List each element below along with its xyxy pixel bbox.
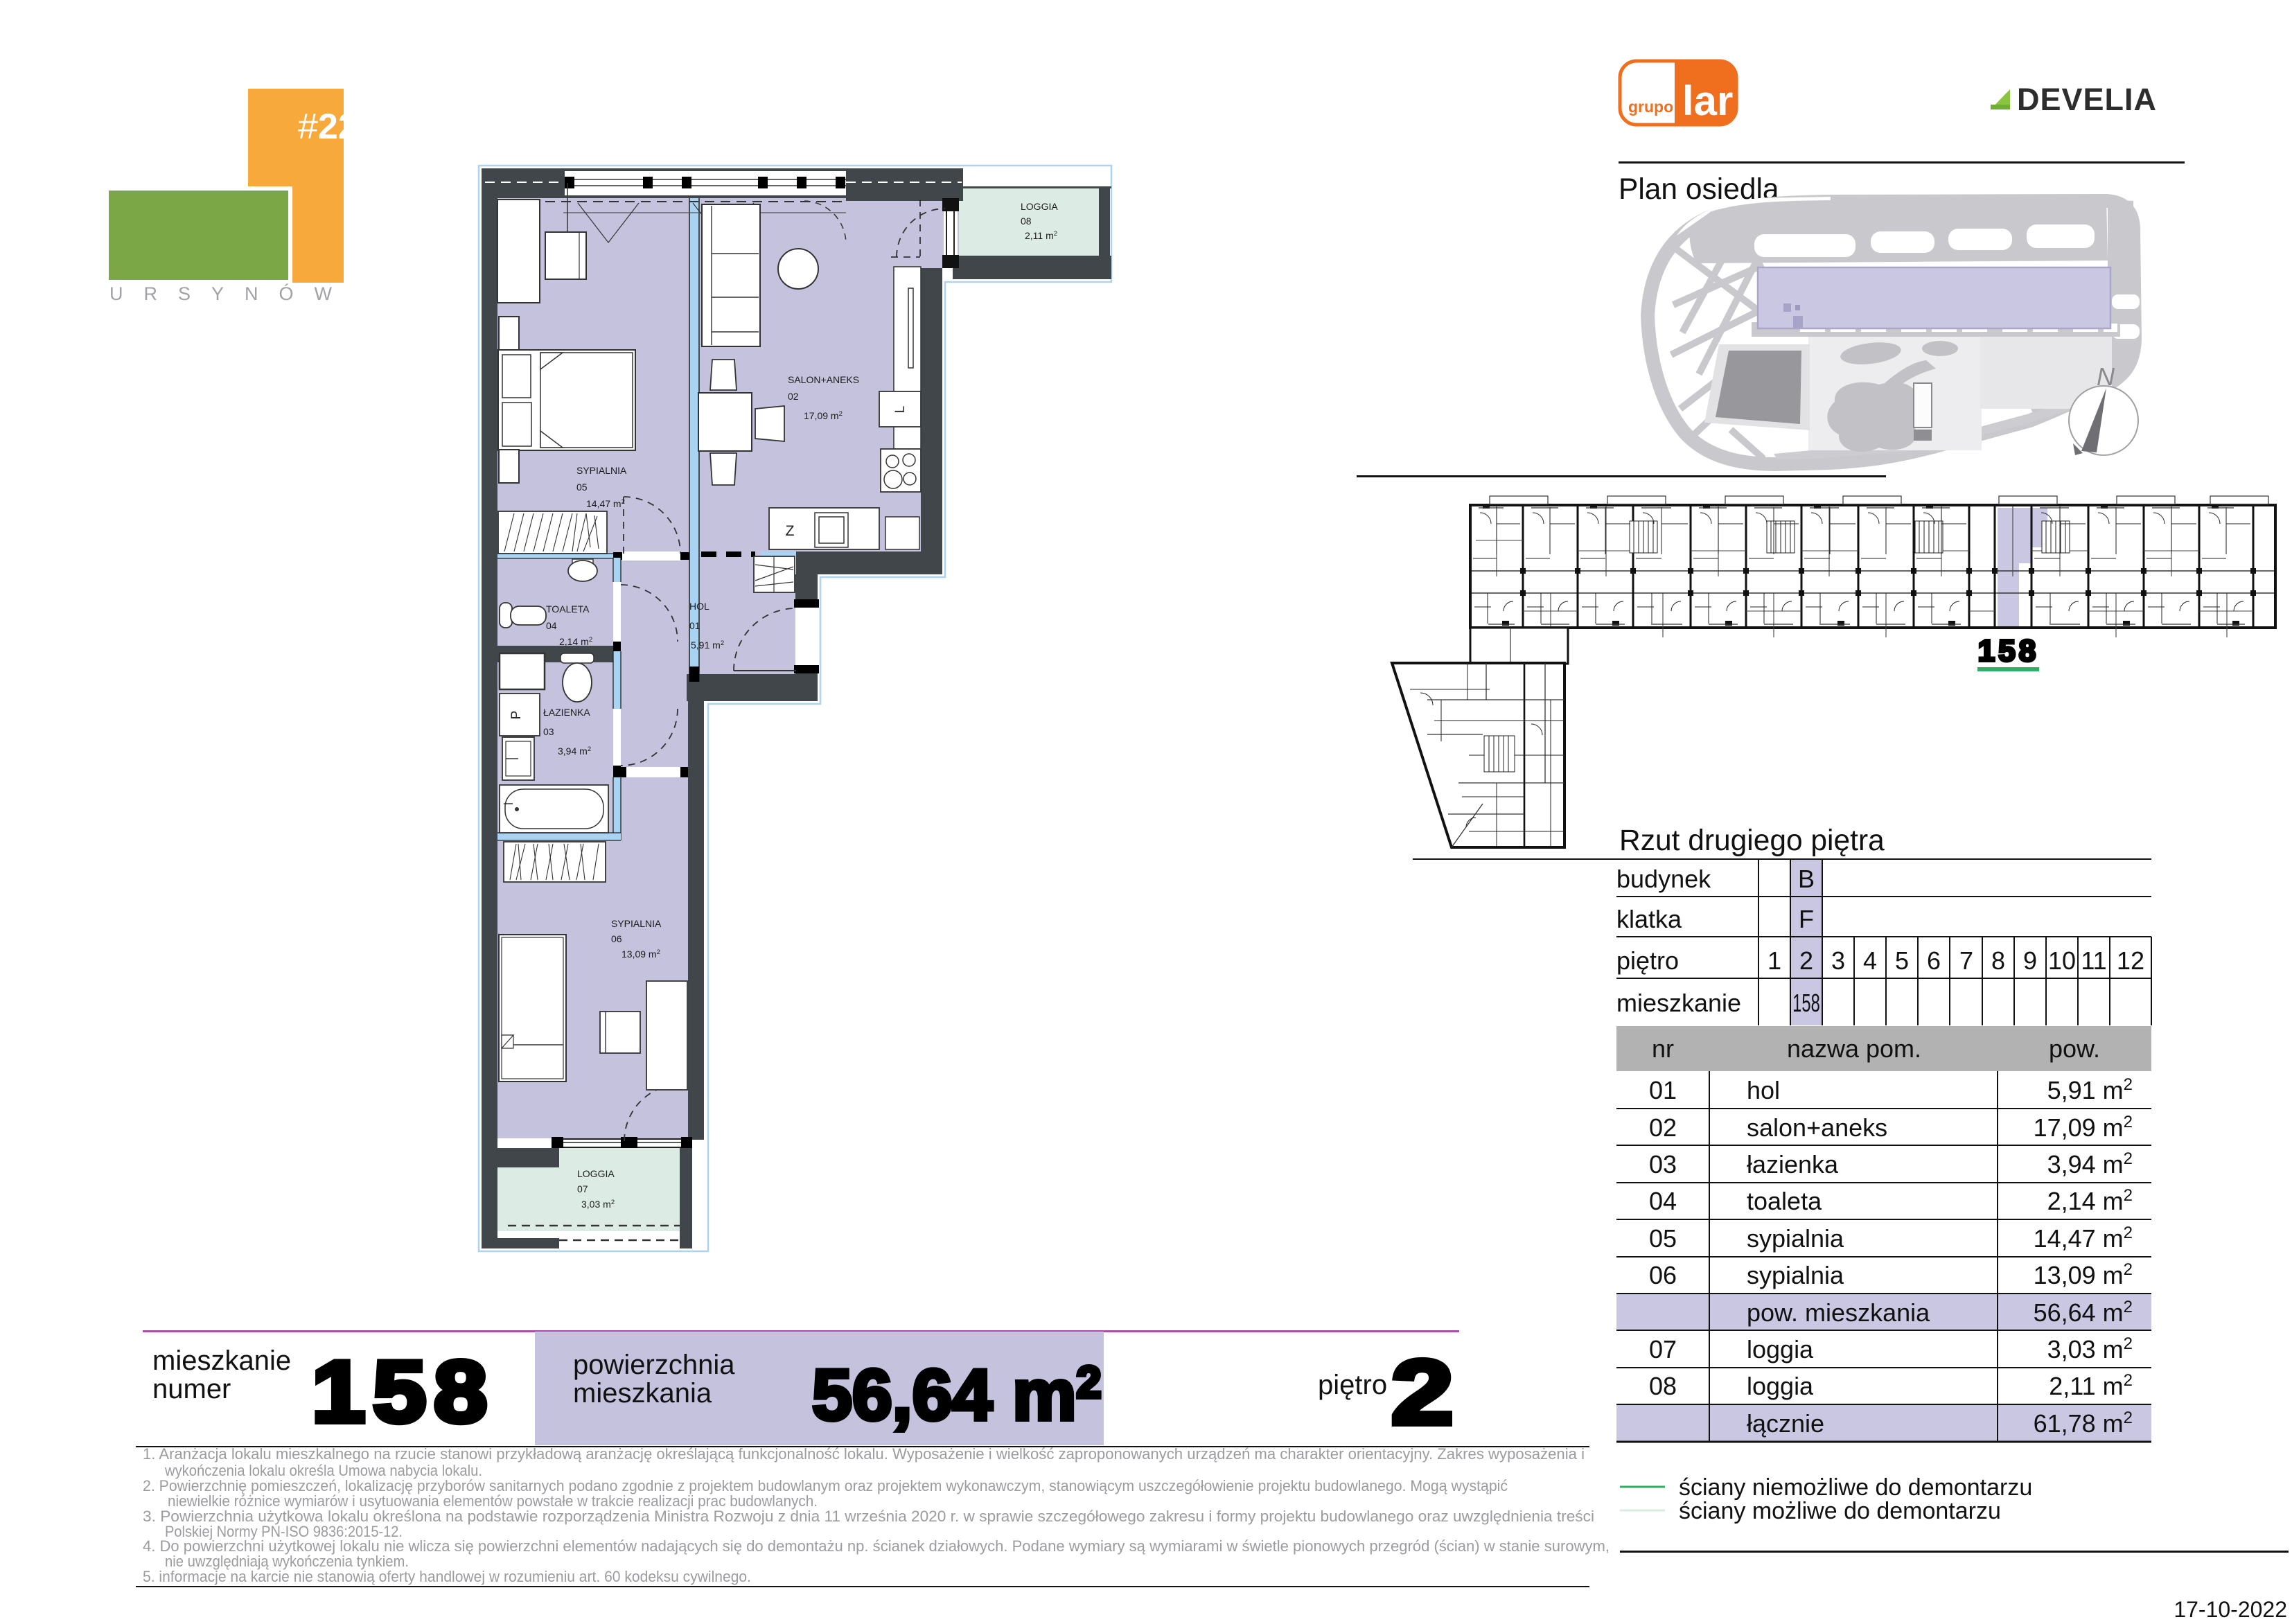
- svg-text:17-10-2022: 17-10-2022: [2174, 1597, 2287, 1621]
- svg-text:01: 01: [689, 620, 700, 631]
- svg-text:5. informacje na karcie nie st: 5. informacje na karcie nie stanowią ofe…: [143, 1568, 751, 1585]
- svg-text:powierzchnia: powierzchnia: [573, 1350, 735, 1380]
- svg-text:2,11 m2: 2,11 m2: [1025, 230, 1057, 241]
- svg-text:hol: hol: [1747, 1076, 1780, 1104]
- svg-text:12: 12: [2117, 946, 2144, 975]
- svg-text:8: 8: [1991, 946, 2005, 975]
- svg-text:04: 04: [546, 620, 557, 631]
- svg-text:2,14 m2: 2,14 m2: [2047, 1186, 2133, 1215]
- svg-text:03: 03: [543, 726, 554, 737]
- svg-text:P: P: [509, 711, 524, 720]
- svg-text:05: 05: [1649, 1224, 1677, 1253]
- svg-text:LOGGIA: LOGGIA: [1021, 201, 1058, 212]
- svg-text:HOL: HOL: [689, 601, 709, 612]
- svg-text:7: 7: [1959, 946, 1973, 975]
- svg-text:ściany możliwe do demontarzu: ściany możliwe do demontarzu: [1679, 1498, 2001, 1524]
- svg-text:Z: Z: [786, 523, 795, 539]
- svg-text:06: 06: [611, 933, 622, 944]
- svg-text:3,94 m2: 3,94 m2: [2047, 1149, 2133, 1179]
- svg-text:mieszkanie: mieszkanie: [1616, 989, 1741, 1017]
- svg-text:5,91 m2: 5,91 m2: [691, 639, 724, 651]
- svg-text:1: 1: [1768, 946, 1781, 975]
- svg-text:URSYNÓW: URSYNÓW: [109, 283, 353, 304]
- svg-text:17,09 m2: 17,09 m2: [804, 410, 843, 421]
- svg-text:ŁAZIENKA: ŁAZIENKA: [543, 707, 590, 718]
- svg-text:loggia: loggia: [1747, 1335, 1814, 1363]
- svg-text:11: 11: [2081, 946, 2106, 975]
- svg-text:6: 6: [1927, 946, 1941, 975]
- svg-text:13,09 m2: 13,09 m2: [622, 948, 660, 960]
- svg-text:5: 5: [1895, 946, 1909, 975]
- svg-text:pow.: pow.: [2049, 1034, 2100, 1063]
- svg-text:2: 2: [1799, 946, 1813, 975]
- svg-text:56,64 m2: 56,64 m2: [2034, 1298, 2133, 1327]
- svg-text:61,78 m2: 61,78 m2: [2034, 1409, 2133, 1438]
- svg-text:03: 03: [1649, 1150, 1677, 1179]
- svg-text:1. Aranżacja lokalu mieszkalne: 1. Aranżacja lokalu mieszkalnego na rzuc…: [143, 1445, 1585, 1463]
- svg-text:3,94 m2: 3,94 m2: [558, 745, 591, 757]
- svg-text:SYPIALNIA: SYPIALNIA: [576, 465, 627, 476]
- svg-text:toaleta: toaleta: [1747, 1187, 1822, 1215]
- svg-text:2,14 m2: 2,14 m2: [559, 636, 592, 647]
- svg-text:N: N: [2097, 362, 2115, 391]
- svg-text:4: 4: [1863, 946, 1877, 975]
- svg-text:L: L: [893, 406, 908, 414]
- svg-text:sypialnia: sypialnia: [1747, 1261, 1844, 1289]
- svg-text:56,64 m2: 56,64 m2: [812, 1355, 1101, 1436]
- svg-text:loggia: loggia: [1747, 1372, 1814, 1400]
- svg-text:13,09 m2: 13,09 m2: [2034, 1260, 2133, 1289]
- svg-text:TOALETA: TOALETA: [546, 603, 590, 615]
- svg-text:nazwa pom.: nazwa pom.: [1787, 1034, 1921, 1063]
- svg-text:9: 9: [2023, 946, 2037, 975]
- svg-text:nr: nr: [1652, 1034, 1674, 1063]
- svg-text:5,91 m2: 5,91 m2: [2047, 1075, 2133, 1104]
- svg-text:05: 05: [576, 482, 588, 493]
- svg-text:SALON+ANEKS: SALON+ANEKS: [788, 374, 859, 385]
- svg-text:B: B: [1798, 865, 1815, 893]
- svg-text:158: 158: [1978, 634, 2039, 668]
- svg-text:158: 158: [1792, 989, 1820, 1017]
- svg-text:ściany niemożliwe do demontarz: ściany niemożliwe do demontarzu: [1679, 1474, 2032, 1501]
- svg-text:14,47 m2: 14,47 m2: [586, 498, 625, 509]
- svg-text:F: F: [1799, 905, 1814, 933]
- svg-text:piętro: piętro: [1318, 1370, 1387, 1400]
- svg-text:06: 06: [1649, 1261, 1677, 1289]
- svg-text:salon+aneks: salon+aneks: [1747, 1113, 1887, 1142]
- svg-text:01: 01: [1649, 1076, 1677, 1104]
- svg-text:08: 08: [1649, 1372, 1677, 1400]
- svg-text:numer: numer: [152, 1374, 231, 1404]
- svg-text:07: 07: [1649, 1335, 1677, 1363]
- svg-text:SYPIALNIA: SYPIALNIA: [611, 918, 662, 929]
- svg-text:08: 08: [1021, 215, 1032, 227]
- svg-text:LOGGIA: LOGGIA: [577, 1168, 615, 1179]
- svg-text:02: 02: [1649, 1113, 1677, 1142]
- svg-text:158: 158: [312, 1343, 495, 1441]
- svg-text:DEVELIA: DEVELIA: [2017, 82, 2157, 117]
- svg-text:lar: lar: [1682, 78, 1733, 124]
- svg-text:grupo: grupo: [1628, 98, 1673, 116]
- svg-text:łącznie: łącznie: [1747, 1409, 1824, 1438]
- svg-text:2: 2: [1391, 1342, 1454, 1444]
- svg-text:Rzut drugiego piętra: Rzut drugiego piętra: [1619, 824, 1885, 857]
- svg-text:2,11 m2: 2,11 m2: [2049, 1371, 2133, 1400]
- svg-text:sypialnia: sypialnia: [1747, 1224, 1844, 1253]
- svg-text:pow. mieszkania: pow. mieszkania: [1747, 1298, 1930, 1327]
- svg-text:budynek: budynek: [1616, 865, 1711, 893]
- svg-text:3,03 m2: 3,03 m2: [2047, 1334, 2133, 1363]
- svg-text:14,47 m2: 14,47 m2: [2034, 1224, 2133, 1253]
- svg-text:3: 3: [1831, 946, 1845, 975]
- svg-text:10: 10: [2048, 946, 2076, 975]
- svg-text:mieszkanie: mieszkanie: [152, 1345, 291, 1376]
- svg-text:klatka: klatka: [1616, 905, 1682, 933]
- svg-text:17,09 m2: 17,09 m2: [2034, 1113, 2133, 1142]
- svg-text:3,03 m2: 3,03 m2: [581, 1199, 615, 1210]
- svg-text:02: 02: [788, 391, 799, 402]
- svg-text:łazienka: łazienka: [1747, 1150, 1839, 1179]
- svg-text:04: 04: [1649, 1187, 1677, 1215]
- svg-text:piętro: piętro: [1616, 946, 1679, 975]
- svg-text:mieszkania: mieszkania: [573, 1378, 712, 1409]
- svg-text:07: 07: [577, 1183, 588, 1194]
